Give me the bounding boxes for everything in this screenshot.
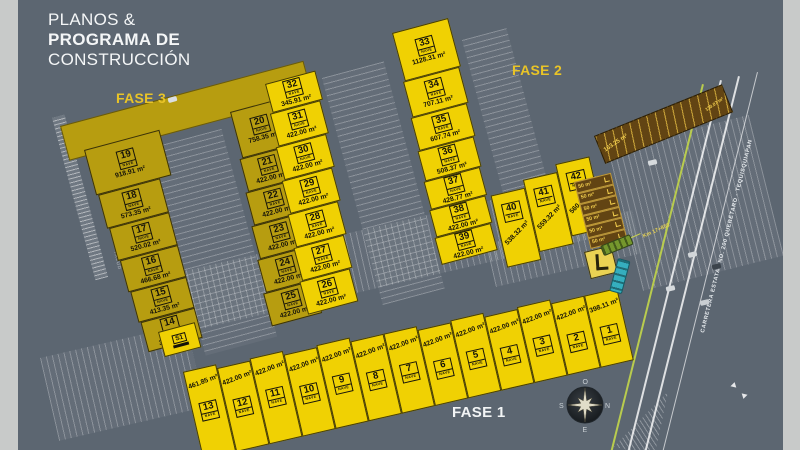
strip-area-label: 163.25 m² <box>603 133 629 153</box>
lot-area: 422.00 m² <box>488 318 519 336</box>
lot-badge: 5 NAVE <box>466 348 487 370</box>
small-lot-area: 50 m² <box>578 181 593 190</box>
lot-area: 422.00 m² <box>388 335 419 353</box>
lot-area: 422.00 m² <box>521 309 552 327</box>
lot-area: 538.32 m² <box>504 219 531 246</box>
compass-rose: O N E S <box>557 377 613 438</box>
lot-badge: 3 NAVE <box>533 334 554 356</box>
traffic-arrow-icon <box>730 381 737 387</box>
page-title: PLANOS & PROGRAMA DE CONSTRUCCIÓN <box>48 10 190 70</box>
lot-area: 461.85 m² <box>187 373 218 391</box>
lot-area: 422.00 m² <box>221 370 252 388</box>
stair-icon <box>615 221 621 227</box>
lot-area: 422.00 m² <box>254 360 285 378</box>
lot-badge: 1 NAVE <box>600 323 621 345</box>
traffic-arrow-icon <box>740 393 747 399</box>
lot-badge: 41 NAVE <box>533 185 555 208</box>
compass-letter-top: O <box>583 379 589 386</box>
lot-badge: 12 NAVE <box>232 395 254 418</box>
lot-badge: 6 NAVE <box>433 357 454 379</box>
lot-area: 559.32 m² <box>536 204 563 231</box>
compass-letter-bottom: E <box>583 427 588 433</box>
left-margin-rail <box>0 0 18 450</box>
stair-icon <box>604 177 610 183</box>
lot-badge: 10 NAVE <box>299 382 321 405</box>
stair-icon <box>609 199 615 205</box>
lot-badge: 2 NAVE <box>567 331 588 353</box>
small-lot-area: 50 m² <box>586 214 601 223</box>
small-lot-area: 50 m² <box>589 225 604 234</box>
title-line1: PLANOS & <box>48 10 190 30</box>
lot-area: 422.00 m² <box>288 356 319 374</box>
lot-area: 422.00 m² <box>354 343 385 361</box>
lot-badge: 9 NAVE <box>332 373 353 395</box>
fase1-label: FASE 1 <box>452 404 506 421</box>
lot-badge: 11 NAVE <box>265 386 287 408</box>
stair-icon <box>612 210 618 216</box>
entrance-glyph <box>595 254 608 271</box>
compass-letter-right: N <box>605 403 610 410</box>
lot-badge: 13 NAVE <box>198 399 220 422</box>
lot-area: 422.00 m² <box>422 332 453 350</box>
strip-area-label: 130.07 m² <box>704 96 724 112</box>
lot-area: 422.00 m² <box>555 305 586 323</box>
title-line2: PROGRAMA DE <box>48 30 190 50</box>
lot-area: 398.11 m² <box>588 297 619 315</box>
compass-svg: O N E S <box>557 377 613 433</box>
lot-area: 422.00 m² <box>320 347 351 365</box>
fase2-label: FASE 2 <box>512 62 562 78</box>
lot-badge: 7 NAVE <box>399 361 420 383</box>
title-line3: CONSTRUCCIÓN <box>48 50 190 70</box>
lot-badge: 8 NAVE <box>366 369 387 391</box>
lot-badge: 4 NAVE <box>500 344 521 366</box>
fase3-label: FASE 3 <box>116 90 166 106</box>
site-plan-canvas: CARRETERA ESTATAL NO. 200 QUERÉTARO - TE… <box>0 0 800 450</box>
stair-icon <box>607 188 613 194</box>
small-lot-area: 50 m² <box>580 192 595 201</box>
right-margin-rail <box>783 0 800 450</box>
lot-badge: 40 NAVE <box>501 200 523 223</box>
compass-letter-left: S <box>559 403 564 410</box>
lot-area: 422.00 m² <box>454 322 485 340</box>
small-lot-area: 50 m² <box>583 203 598 212</box>
car <box>666 285 676 292</box>
